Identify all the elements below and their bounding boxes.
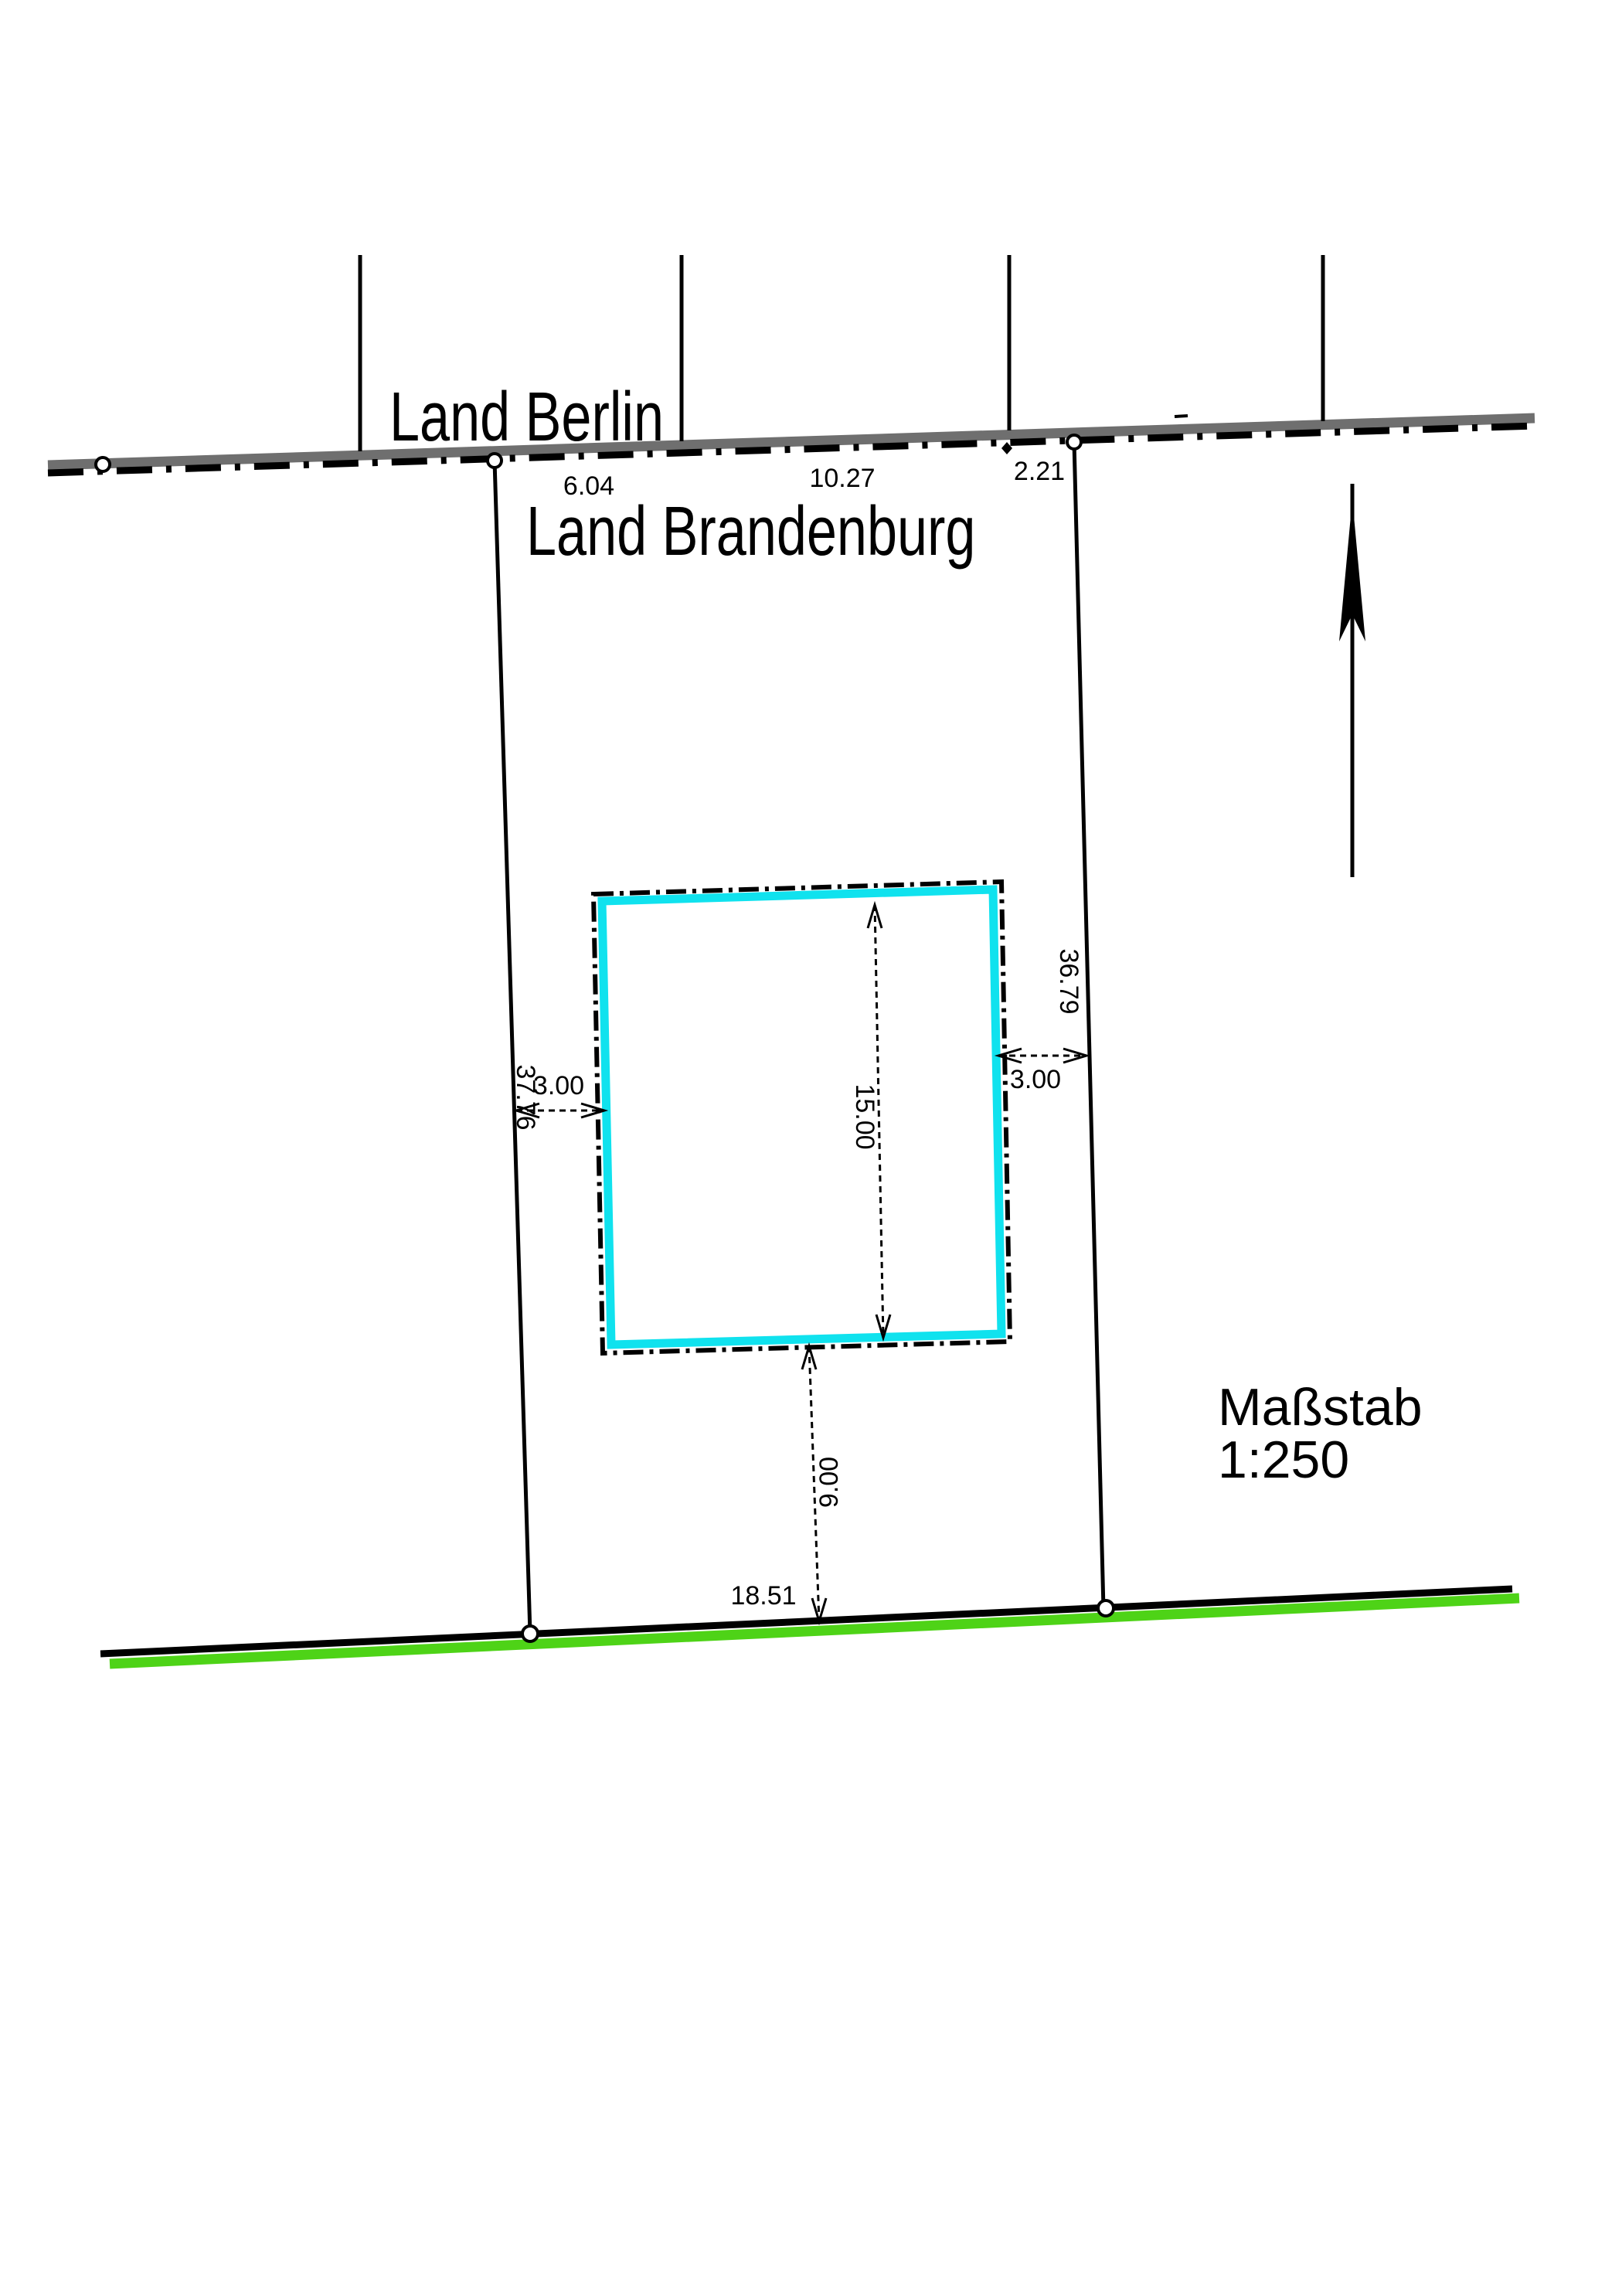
dim-label-boundary-segment-3: 2.21 [1014, 457, 1065, 486]
street-point-marker-right [1098, 1600, 1114, 1616]
state-boundary-gray-band [48, 418, 1535, 465]
dim-label-boundary-segment-1: 6.04 [563, 471, 614, 501]
label-land-brandenburg: Land Brandenburg [526, 493, 975, 570]
north-arrow-icon [1339, 484, 1365, 877]
building-footprint-outline [602, 889, 1001, 1345]
street-point-marker-left [522, 1626, 538, 1641]
boundary-point-marker-right [1067, 435, 1081, 449]
label-land-berlin: Land Berlin [389, 379, 664, 456]
building-limit-dash-dot-outline [593, 882, 1010, 1353]
scale-label: Maßstab [1218, 1378, 1423, 1437]
dim-label-building-depth: 15.00 [850, 1083, 879, 1149]
scale-value: 1:250 [1218, 1430, 1349, 1489]
dim-label-parcel-right-length: 36.79 [1054, 948, 1083, 1014]
dim-label-setback-rear: 9.00 [814, 1457, 844, 1508]
parcel-left-boundary-line [495, 461, 530, 1634]
dim-label-street-frontage: 18.51 [730, 1581, 796, 1611]
dim-label-setback-left: 3.00 [533, 1071, 584, 1100]
state-boundary-dashed-line [48, 426, 1535, 473]
street-boundary-line [100, 1589, 1512, 1654]
parcel-right-boundary-line [1074, 442, 1103, 1609]
site-plan-sheet: Land Berlin Land Brandenburg 6.04 10.27 … [0, 0, 1605, 2296]
site-plan-drawing: Land Berlin Land Brandenburg 6.04 10.27 … [0, 0, 1605, 2296]
boundary-stray-dash [1175, 416, 1188, 417]
scale-block: Maßstab 1:250 [1218, 1378, 1423, 1489]
boundary-point-marker-start [96, 457, 110, 471]
dim-label-boundary-segment-2: 10.27 [809, 464, 875, 493]
dim-label-setback-right: 3.00 [1010, 1065, 1061, 1094]
